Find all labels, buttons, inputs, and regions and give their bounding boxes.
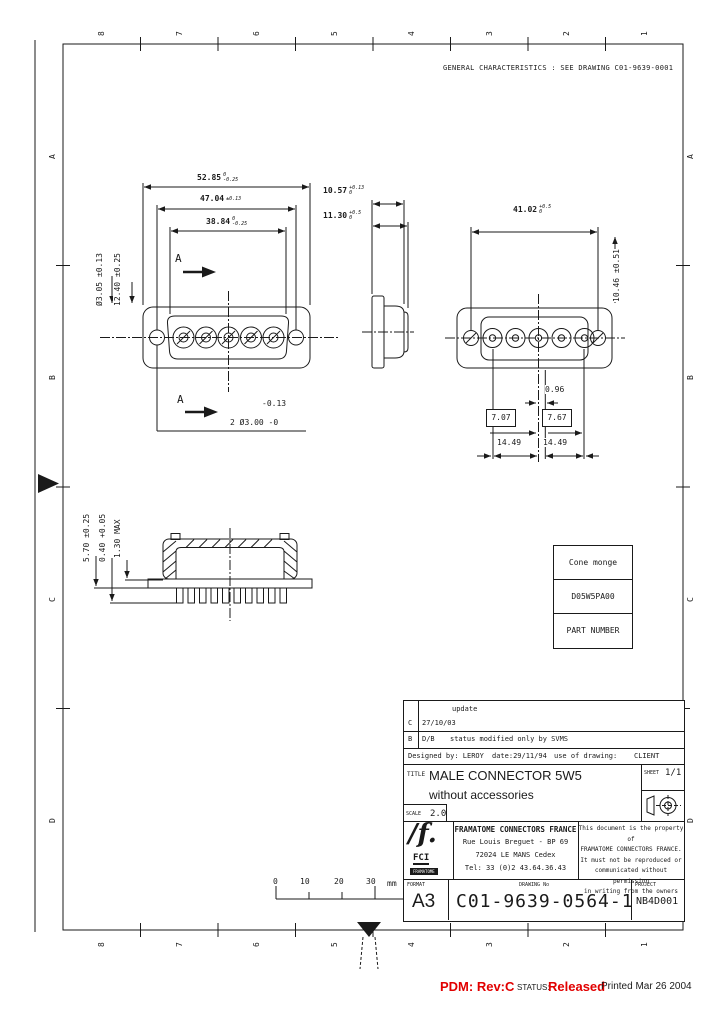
project-label: PROJECT	[635, 882, 656, 888]
designed-row: Designed by: LEROY date:29/11/94 use of …	[404, 748, 684, 765]
section-label-a-top: A	[175, 252, 182, 265]
title-block: update C 27/10/03 B D/B status modified …	[403, 700, 685, 922]
dim-41-02: 41.02+0.50	[512, 205, 552, 215]
dim-1-30-max: 1.30 MAX	[113, 519, 122, 558]
frame-row-label: B	[49, 375, 57, 380]
fci-logo-group: FRAMATOME	[410, 868, 438, 875]
frame-col-label: 8	[98, 31, 106, 36]
frame-col-label: 3	[486, 942, 494, 947]
frame-col-label: 2	[563, 31, 571, 36]
left-center-mark	[38, 474, 59, 493]
drawing-number: C01-9639-0564-1	[456, 891, 634, 912]
dim-0-96: 0.96	[545, 385, 564, 394]
rev-letter: B	[408, 735, 412, 743]
design-date: date:29/11/94	[492, 752, 547, 760]
drawing-number-label: DRAWING No	[519, 882, 549, 888]
company-addr3: Tel: 33 (0)2 43.64.36.43	[453, 862, 578, 875]
company-name: FRAMATOME CONNECTORS FRANCE	[453, 823, 578, 836]
rev-desc: update	[452, 705, 477, 713]
side-view	[362, 200, 414, 368]
company-addr1: Rue Louis Breguet - BP 69	[453, 836, 578, 849]
hole-callout-tol: -0.13	[262, 399, 286, 408]
dim-flange-height: 12.40 ±0.25	[113, 253, 122, 306]
frame-row-label: D	[687, 818, 695, 823]
basic-dim-7-07: 7.07	[486, 409, 516, 427]
dim-11-30: 11.30+0.50	[322, 211, 362, 221]
company-address: FRAMATOME CONNECTORS FRANCE Rue Louis Br…	[453, 823, 578, 879]
ruler-label-20: 20	[334, 877, 344, 886]
rev-desc: status modified only by SVMS	[450, 735, 568, 743]
rear-view	[445, 227, 625, 462]
section-arrow-bottom	[185, 407, 218, 418]
dim-10-46: 10.46 ±0.51	[612, 249, 621, 302]
frame-col-label: 4	[408, 31, 416, 36]
drawing-title: MALE CONNECTOR 5W5	[429, 768, 582, 783]
dim-38-84: 38.840-0.25	[205, 217, 248, 227]
frame-col-label: 2	[563, 942, 571, 947]
revision-row-b: B D/B status modified only by SVMS	[404, 731, 684, 749]
dim-14-49-right: 14.49	[543, 438, 567, 447]
frame-col-label: 4	[408, 942, 416, 947]
frame-row-label: D	[49, 818, 57, 823]
designed-by: Designed by: LEROY	[408, 752, 484, 760]
status-label: STATUS:	[517, 983, 550, 992]
frame-row-label: B	[687, 375, 695, 380]
printed-date: Printed Mar 26 2004	[601, 981, 692, 992]
section-arrow-top	[183, 267, 216, 278]
dim-14-49-left: 14.49	[497, 438, 521, 447]
drawing-sheet: 8 7 6 5 4 3 2 1 8 7 6 5 4 3 2 1 A B C D …	[0, 0, 720, 1012]
frame-row-label: C	[687, 597, 695, 602]
pdm-rev: PDM: Rev:C	[440, 979, 514, 994]
status-value: Released	[548, 979, 605, 994]
frame-col-label: 3	[486, 31, 494, 36]
property-notice: This document is the property of FRAMATO…	[578, 824, 684, 879]
revision-row-c: update C 27/10/03	[404, 701, 684, 732]
hole-callout: 2 Ø3.00 -0	[230, 418, 278, 427]
sheet-box: SHEET 1/1	[641, 764, 684, 791]
part-table-row: Cone monge	[554, 546, 632, 580]
dim-10-57: 10.57+0.130	[322, 186, 365, 196]
frame-col-label: 6	[253, 942, 261, 947]
frame-col-label: 1	[641, 31, 649, 36]
section-aa-view	[94, 528, 312, 621]
general-note: GENERAL CHARACTERISTICS : SEE DRAWING C0…	[443, 64, 673, 72]
frame-col-label: 5	[331, 942, 339, 947]
title-row: TITLE MALE CONNECTOR 5W5 without accesso…	[404, 764, 684, 822]
frame-col-label: 8	[98, 942, 106, 947]
rev-letter: C	[408, 719, 412, 727]
company-addr2: 72024 LE MANS Cedex	[453, 849, 578, 862]
scale-label: SCALE	[406, 811, 421, 817]
ruler-label-10: 10	[300, 877, 310, 886]
dim-47-04: 47.04±0.13	[199, 195, 242, 203]
scale-value: 2.0	[430, 809, 446, 819]
rev-date: 27/10/03	[422, 719, 456, 727]
ruler-label-0: 0	[273, 877, 278, 886]
ruler-label-30: 30	[366, 877, 376, 886]
fci-logo-name: FCI	[413, 853, 429, 865]
frame-col-label: 7	[176, 31, 184, 36]
part-table: Cone monge D05W5PA00 PART NUMBER	[553, 545, 633, 649]
dim-hole-dia: Ø3.05 ±0.13	[95, 253, 104, 306]
projection-symbol	[642, 791, 684, 820]
title-label: TITLE	[407, 772, 425, 778]
section-label-a-bottom: A	[177, 393, 184, 406]
frame-col-label: 1	[641, 942, 649, 947]
drawing-subtitle: without accessories	[429, 788, 534, 802]
project-value: NB4D001	[636, 896, 678, 907]
rev-date: D/B	[422, 735, 435, 743]
frame-col-label: 7	[176, 942, 184, 947]
format-value: A3	[412, 891, 435, 913]
frame-col-label: 5	[331, 31, 339, 36]
ruler-unit: mm	[387, 879, 397, 888]
sheet-label: SHEET	[644, 770, 659, 776]
dim-52-85: 52.850-0.25	[196, 173, 239, 183]
sheet-value: 1/1	[665, 768, 681, 778]
dim-5-70: 5.70 ±0.25	[82, 514, 91, 562]
dim-0-40: 0.40 +0.05	[98, 514, 107, 562]
company-row: ∕f. FCI FRAMATOME FRAMATOME CONNECTORS F…	[404, 821, 684, 880]
fci-logo: ∕f. FCI FRAMATOME	[404, 821, 453, 879]
fci-logo-glyph: ∕f.	[408, 819, 437, 849]
frame-row-label: A	[687, 154, 695, 159]
frame-col-label: 6	[253, 31, 261, 36]
part-table-row: D05W5PA00	[554, 580, 632, 614]
part-table-row: PART NUMBER	[554, 614, 632, 647]
format-label: FORMAT	[407, 882, 425, 888]
contact-tails	[177, 588, 287, 603]
frame-row-label: A	[49, 154, 57, 159]
basic-dim-7-67: 7.67	[542, 409, 572, 427]
footer-row: FORMAT A3 DRAWING No C01-9639-0564-1 PRO…	[404, 879, 684, 920]
frame-row-label: C	[49, 597, 57, 602]
use-of-drawing-label: use of drawing:	[554, 752, 617, 760]
use-of-drawing-value: CLIENT	[634, 752, 659, 760]
